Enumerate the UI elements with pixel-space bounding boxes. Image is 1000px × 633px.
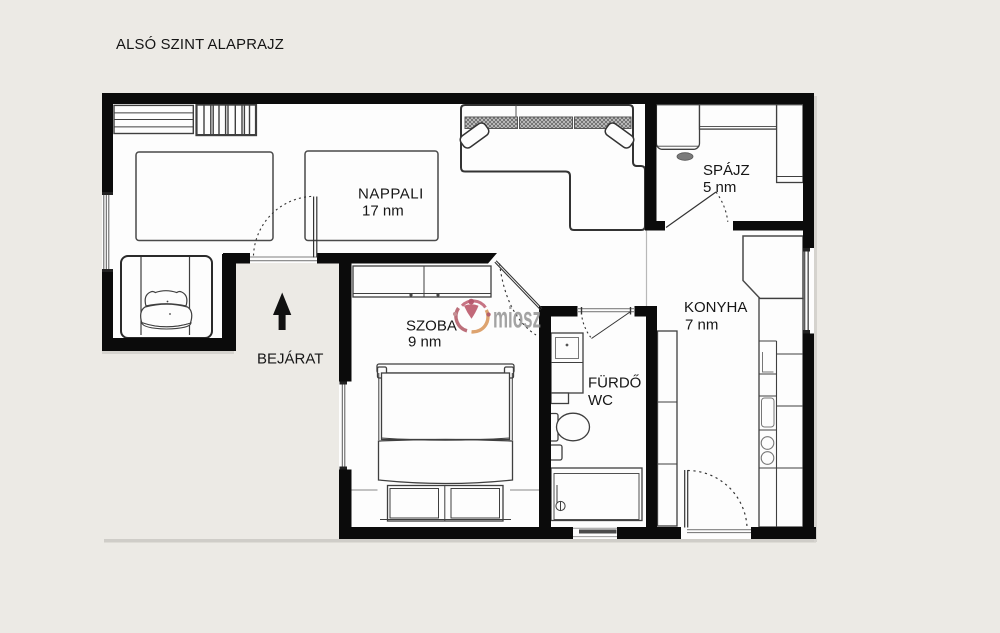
- svg-text:miosz: miosz: [493, 302, 541, 335]
- svg-text:5 nm: 5 nm: [703, 179, 736, 196]
- svg-text:FÜRDŐ: FÜRDŐ: [588, 373, 641, 391]
- svg-text:BEJÁRAT: BEJÁRAT: [257, 351, 323, 368]
- svg-text:SPÁJZ: SPÁJZ: [703, 162, 750, 179]
- svg-text:SZOBA: SZOBA: [406, 318, 457, 335]
- svg-text:7 nm: 7 nm: [685, 317, 718, 334]
- svg-text:NAPPALI: NAPPALI: [358, 186, 424, 203]
- svg-text:17 nm: 17 nm: [362, 203, 404, 220]
- svg-text:WC: WC: [588, 392, 613, 409]
- svg-text:ALSÓ SZINT ALAPRAJZ: ALSÓ SZINT ALAPRAJZ: [116, 36, 284, 53]
- svg-text:KONYHA: KONYHA: [684, 299, 747, 316]
- svg-text:9 nm: 9 nm: [408, 334, 441, 351]
